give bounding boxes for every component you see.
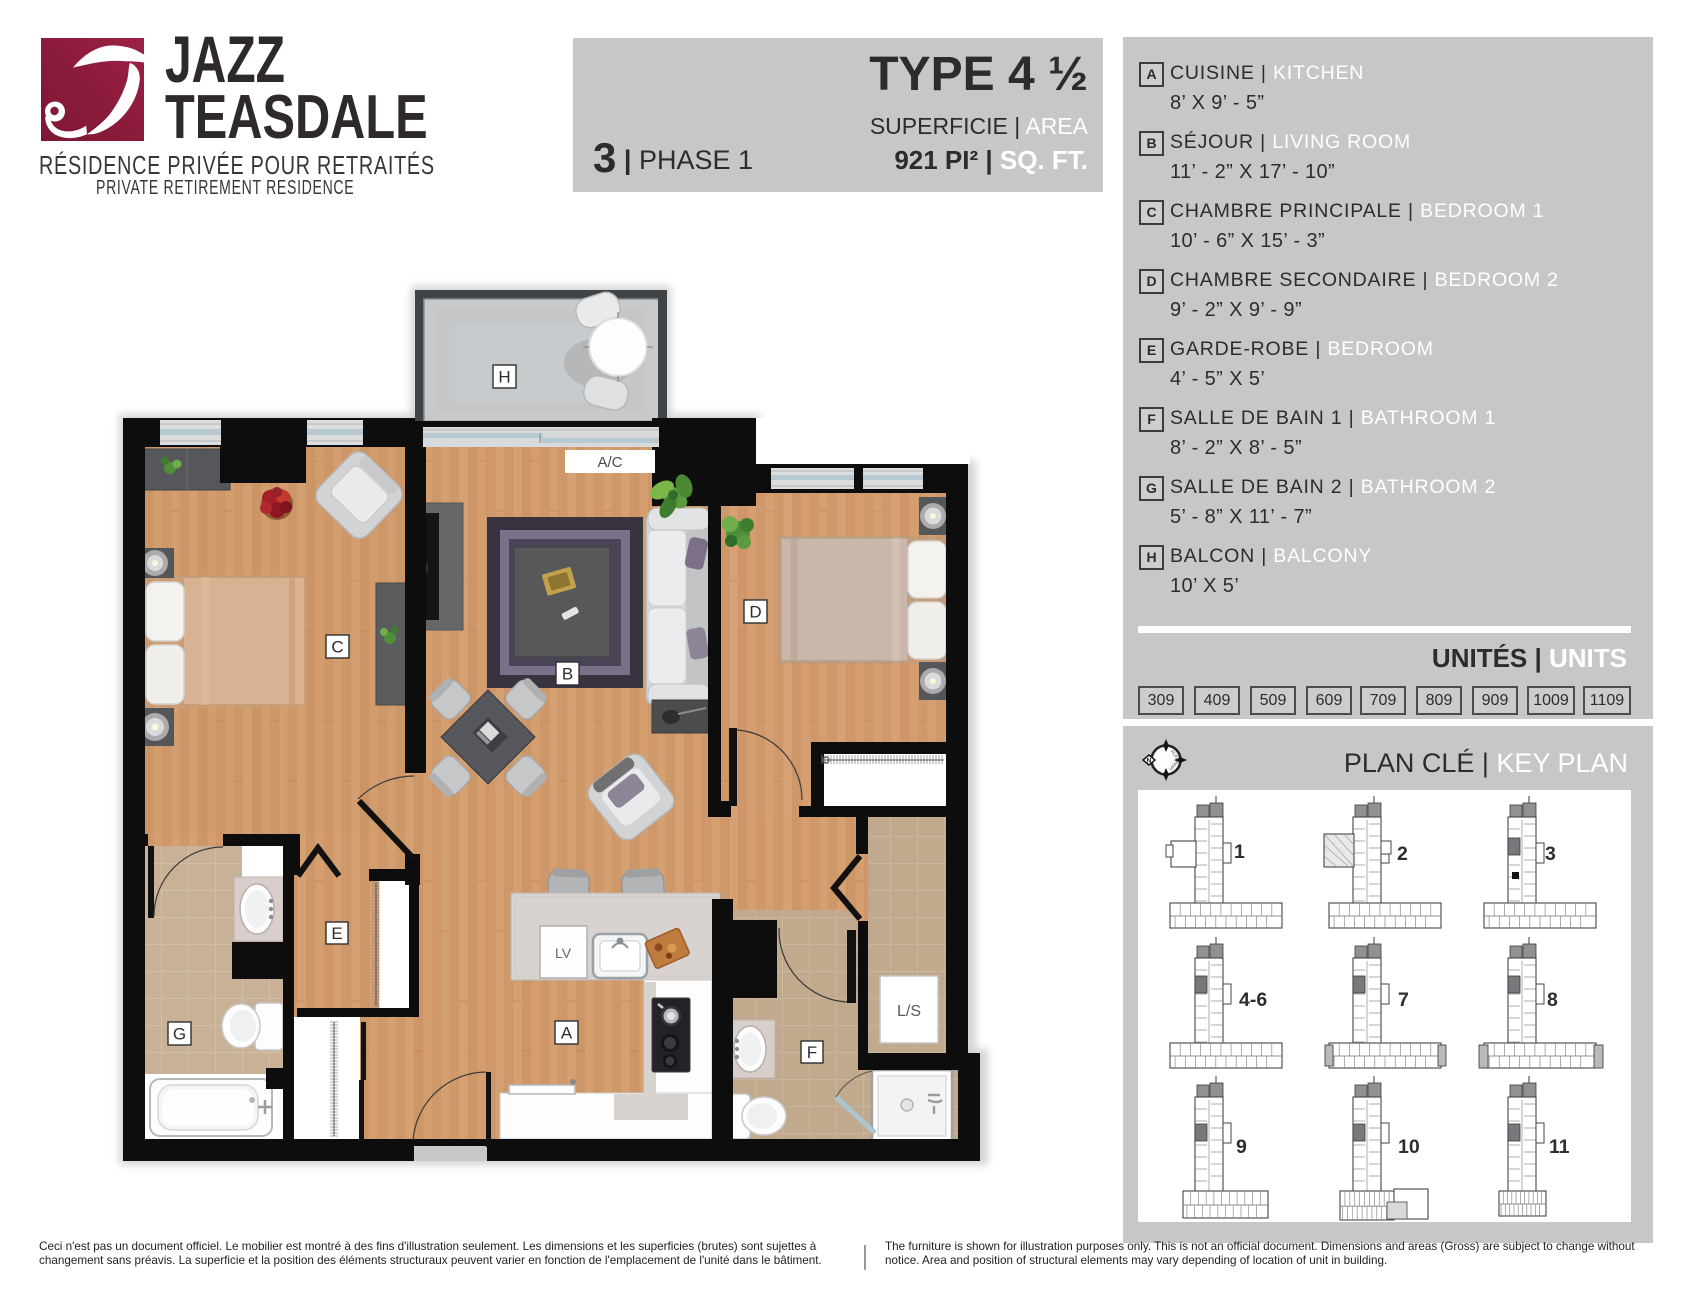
svg-text:D: D — [749, 603, 761, 622]
svg-text:A/C: A/C — [597, 454, 622, 471]
svg-text:L/S: L/S — [897, 1003, 921, 1020]
svg-text:G: G — [173, 1025, 186, 1044]
svg-text:C: C — [331, 638, 343, 657]
svg-text:LV: LV — [555, 945, 572, 961]
svg-text:A: A — [561, 1024, 573, 1043]
svg-text:B: B — [562, 665, 573, 684]
svg-text:F: F — [807, 1043, 817, 1062]
svg-text:H: H — [498, 368, 510, 387]
svg-text:E: E — [331, 924, 342, 943]
